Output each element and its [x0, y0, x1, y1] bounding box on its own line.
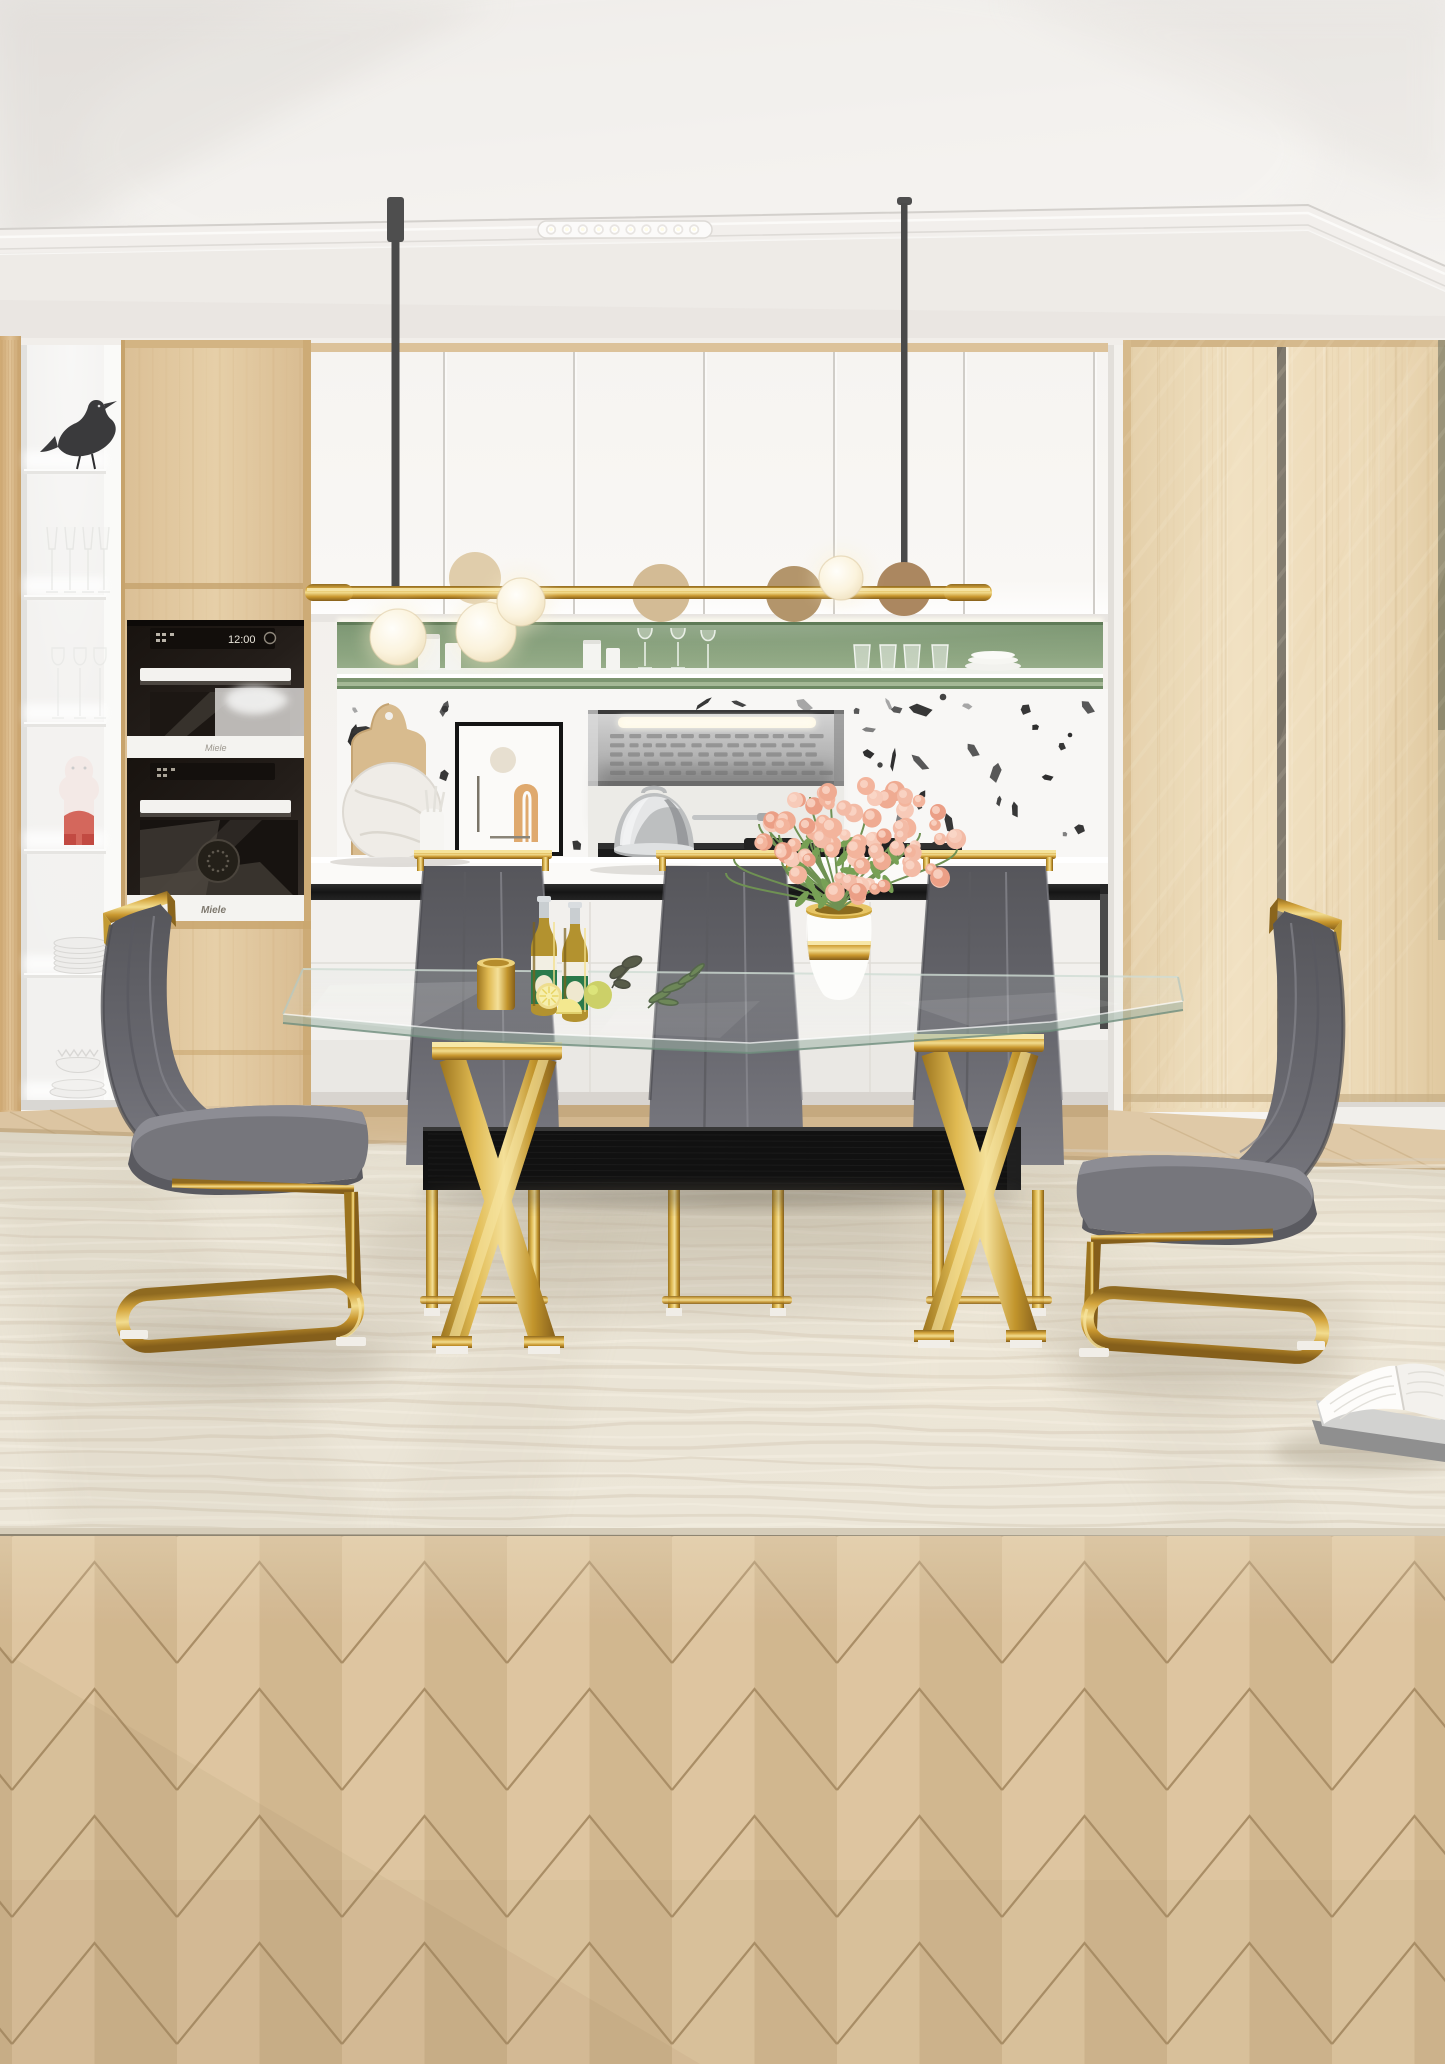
svg-text:Miele: Miele — [201, 905, 226, 916]
svg-text:12:00: 12:00 — [228, 634, 256, 646]
svg-text:Miele: Miele — [205, 743, 227, 753]
